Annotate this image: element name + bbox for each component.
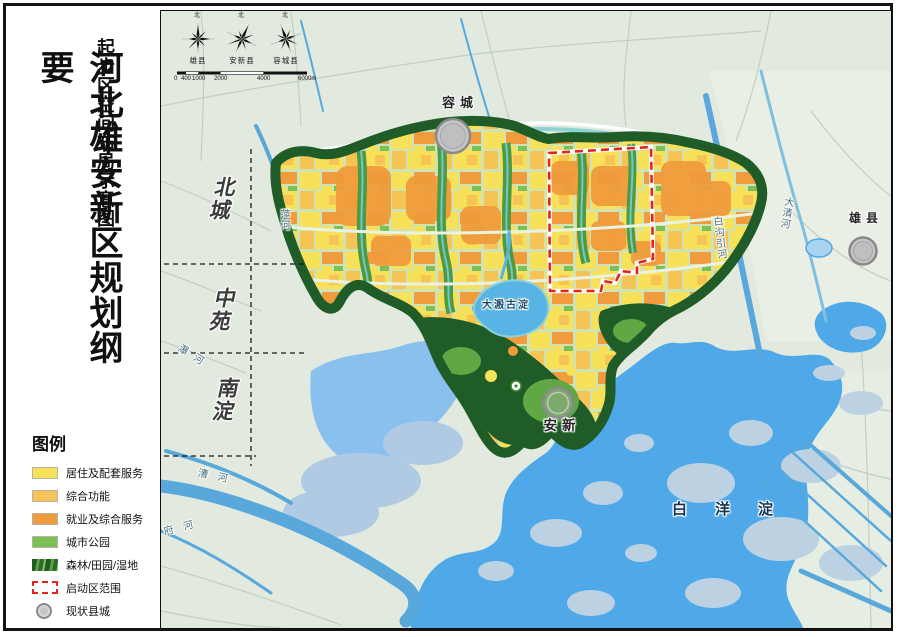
legend-label: 就业及综合服务 bbox=[66, 511, 143, 527]
county-town-swatch bbox=[36, 603, 52, 619]
legend-label: 现状县城 bbox=[66, 603, 110, 619]
scale-bar bbox=[177, 72, 307, 75]
legend-label: 综合功能 bbox=[66, 488, 110, 504]
legend-item-startup-area: 启动区范围 bbox=[32, 578, 157, 597]
legend-item-employment: 就业及综合服务 bbox=[32, 509, 157, 528]
legend: 图例 居住及配套服务 综合功能 就业及综合服务 城市公园 森林/田园/湿地 启动… bbox=[32, 430, 157, 624]
comprehensive-swatch bbox=[32, 490, 58, 502]
legend-item-park: 城市公园 bbox=[32, 532, 157, 551]
pond bbox=[806, 239, 832, 257]
startup-area-swatch bbox=[32, 581, 58, 594]
legend-label: 启动区范围 bbox=[66, 580, 121, 596]
legend-item-forest: 森林/田园/湿地 bbox=[32, 555, 157, 574]
employment-swatch bbox=[32, 513, 58, 525]
park-swatch bbox=[32, 536, 58, 548]
residential-swatch bbox=[32, 467, 58, 479]
legend-label: 城市公园 bbox=[66, 534, 110, 550]
forest-swatch bbox=[32, 559, 58, 571]
page-subtitle: 起步区空间布局示意图 bbox=[92, 38, 118, 248]
target-icon bbox=[511, 381, 521, 391]
legend-label: 森林/田园/湿地 bbox=[66, 557, 138, 573]
legend-label: 居住及配套服务 bbox=[66, 465, 143, 481]
legend-item-residential: 居住及配套服务 bbox=[32, 463, 157, 482]
legend-heading: 图例 bbox=[32, 430, 157, 455]
legend-item-comprehensive: 综合功能 bbox=[32, 486, 157, 505]
legend-item-county-town: 现状县城 bbox=[32, 601, 157, 620]
map-canvas bbox=[160, 10, 892, 629]
